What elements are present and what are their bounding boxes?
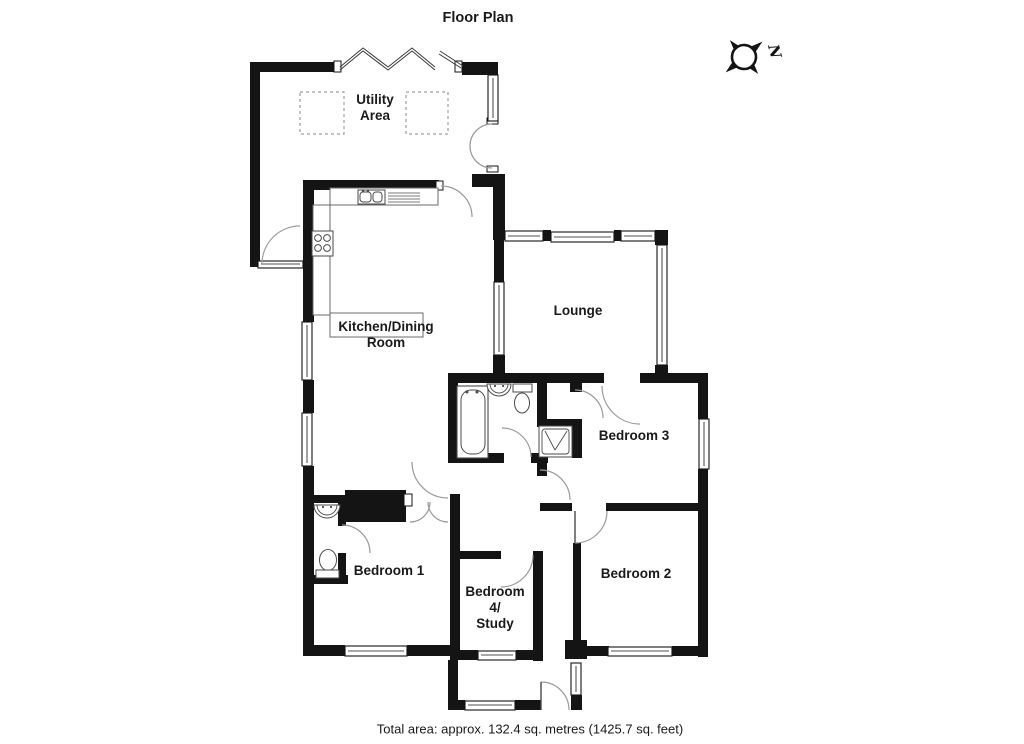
compass-north-label: N (764, 41, 786, 61)
wc-basin (314, 505, 340, 518)
bathroom-basin (487, 384, 511, 396)
floor-plan-page: Floor Plan (0, 0, 1024, 744)
bathroom-toilet (513, 384, 532, 413)
bath (457, 386, 488, 458)
room-label-bedroom-1: Bedroom 1 (354, 563, 425, 579)
room-label-bedroom-4-study: Bedroom 4/ Study (465, 584, 524, 632)
bifold-door (340, 48, 463, 70)
room-label-kitchen-dining-room: Kitchen/Dining Room (338, 319, 433, 351)
total-area-note: Total area: approx. 132.4 sq. metres (14… (377, 722, 683, 737)
room-label-bedroom-3: Bedroom 3 (599, 428, 670, 444)
hob (312, 231, 333, 256)
wc-toilet (316, 550, 339, 579)
shower-cubicle (539, 426, 572, 457)
room-label-utility-area: Utility Area (356, 92, 394, 124)
floor-plan-drawing: N (0, 0, 1024, 744)
compass-icon: N (711, 25, 785, 90)
room-label-lounge: Lounge (554, 303, 603, 319)
kitchen-counter (313, 188, 438, 337)
room-label-bedroom-2: Bedroom 2 (601, 566, 672, 582)
door-leaves (541, 511, 575, 710)
